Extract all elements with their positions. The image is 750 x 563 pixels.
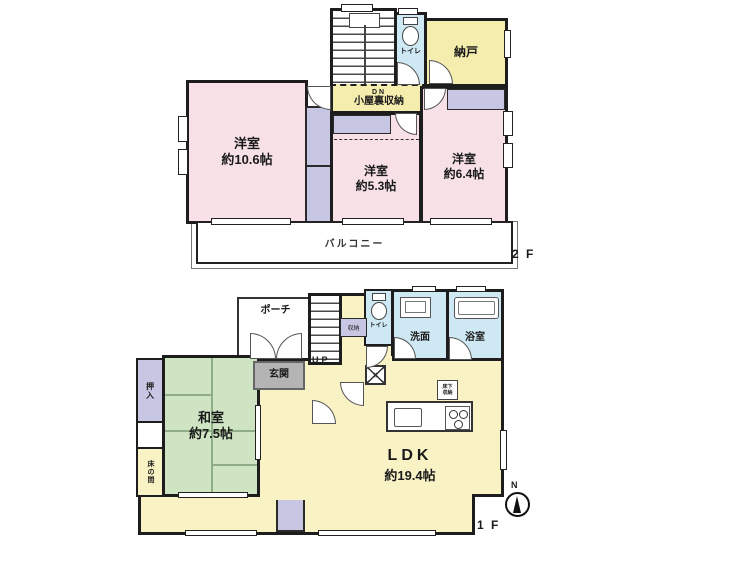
refrigerator-space-icon [365,365,386,385]
washing-machine-icon [400,297,431,318]
closet-bottom [276,497,305,532]
window-icon [178,116,188,142]
closet-oshiire: 押入 [136,358,164,424]
window-icon [341,4,373,12]
attic-storage-hall: DN 小屋裏収納 [330,84,428,114]
closet-2f-room3 [447,89,505,110]
sliding-door-icon [178,492,248,498]
burner-icon [454,420,463,429]
kitchen-counter [386,401,473,432]
window-icon [412,286,436,292]
toilet-bowl-icon [371,302,387,320]
window-icon [398,8,418,15]
stair-treads-icon [311,296,339,362]
closet-hall: 収納 [340,318,367,337]
tokonoma-alcove: 床の間 [136,447,164,497]
window-icon [456,286,486,292]
room-western-10-6: 洋室 約10.6帖 [186,80,308,224]
floor-plan: トイレ 納戸 DN 小屋裏収納 洋室 約10.6帖 洋室 約5.3帖 洋室 約6… [0,0,750,563]
sliding-window-icon [318,530,436,536]
sliding-window-icon [185,530,257,536]
room-label: 玄関 [269,369,289,382]
toilet-tank-icon [403,17,418,25]
window-icon [503,143,513,168]
ldk-label: LDK 約19.4帖 [330,447,490,484]
room-name: 洋室 [364,164,388,179]
sliding-door-icon [255,405,261,460]
stairs-down-label: DN [372,89,386,96]
room-size: 約10.6帖 [221,152,272,168]
room-japanese: 和室 約7.5帖 [162,355,260,497]
room-name: 洋室 [452,152,476,167]
room-name: LDK [330,447,490,465]
room-label: ポーチ [261,305,291,318]
tatami-line [211,464,257,466]
closet-2f-room2 [333,115,391,134]
window-icon [504,30,511,58]
window-icon [178,149,188,175]
room-label: トイレ [400,46,421,56]
toilet-tank-icon [372,293,386,301]
window-icon [503,111,513,136]
porch: ポーチ [237,297,314,361]
room-name: 和室 [198,410,224,426]
room-genkan: 玄関 [253,361,305,390]
floor-label-2f: 2 F [512,247,535,261]
balcony: バルコニー [196,221,513,264]
compass-icon [505,492,530,517]
room-toilet-1f: トイレ [364,289,393,346]
room-label: 小屋裏収納 [354,96,404,109]
room-ldk-corridor [138,494,475,535]
label-line2: 収納 [442,390,452,396]
room-label: バルコニー [325,235,385,250]
wall-opening [260,491,472,500]
room-label: 納戸 [454,45,478,60]
tatami-line [165,394,211,396]
burner-icon [449,410,458,419]
room-label: 洗面 [410,332,430,345]
attic-dashed-line [334,139,419,140]
room-label: 押入 [145,382,156,400]
bathtub-icon [454,297,499,319]
room-size: 約7.5帖 [189,426,233,442]
room-label: 床の間 [145,460,155,484]
compass-north-label: N [511,480,518,490]
sliding-window-icon [342,218,404,225]
closet-2f-middle [305,106,332,224]
underfloor-storage: 床下 収納 [437,380,458,400]
sink-icon [394,408,422,427]
burner-icon [459,410,468,419]
floor-label-1f: 1 F [477,518,500,532]
window-icon [500,430,507,470]
stove-icon [445,406,470,430]
toilet-bowl-icon [402,26,419,46]
room-name: 洋室 [234,136,260,152]
stair-divider [364,25,366,84]
stairs-2f [330,8,397,87]
sliding-window-icon [430,218,492,225]
room-size: 約6.4帖 [444,167,485,182]
room-label: 浴室 [465,332,485,345]
room-size: 約5.3帖 [356,179,397,194]
room-size: 約19.4帖 [330,465,490,484]
stairs-up-label: UP [312,355,331,365]
room-label: トイレ [369,320,387,329]
sliding-window-icon [211,218,291,225]
alcove-box [136,421,164,450]
room-label: 収納 [347,323,359,332]
